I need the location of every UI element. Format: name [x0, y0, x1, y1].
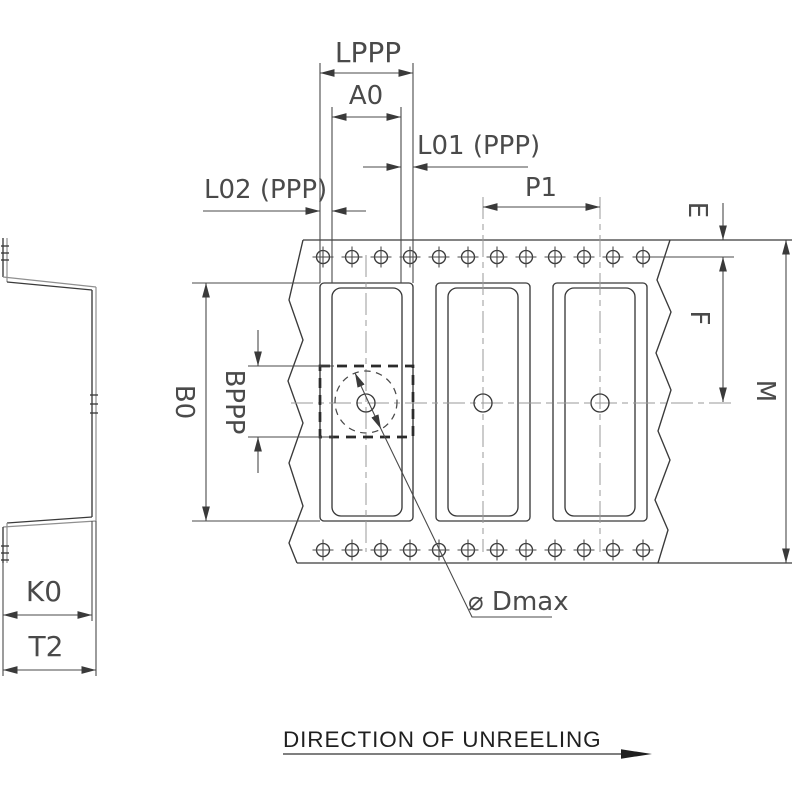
dimension-lppp: LPPP: [320, 36, 413, 283]
m-label: M: [750, 380, 780, 402]
f-label: F: [684, 311, 714, 326]
dimension-l02: L02 (PPP): [203, 175, 366, 211]
l02-label: L02 (PPP): [204, 175, 327, 205]
carrier-tape-technical-drawing: K0 T2: [0, 0, 800, 800]
dimension-m: M: [750, 240, 786, 563]
side-profile-view: K0 T2: [1, 238, 98, 676]
e-label: E: [682, 202, 712, 218]
a0-label: A0: [349, 81, 383, 111]
dmax-hole-side-ticks: [90, 395, 98, 413]
center-lines: [291, 197, 735, 552]
t2-label: T2: [28, 630, 64, 663]
direction-arrow-icon: [621, 749, 652, 758]
dimension-p1: P1: [483, 173, 600, 207]
dimension-e: E: [651, 202, 734, 257]
sprocket-hole-side-ticks-top: [1, 246, 9, 260]
direction-label: DIRECTION OF UNREELING: [283, 727, 602, 752]
tape-torn-edge-right: [655, 240, 671, 563]
tape-torn-edge-left: [288, 240, 303, 563]
b0-label: B0: [169, 385, 199, 419]
pocket-top-wall-inner: [7, 282, 92, 290]
l01-label: L01 (PPP): [417, 131, 540, 161]
bppp-label: BPPP: [219, 370, 249, 435]
diameter-arrow: [355, 373, 381, 429]
dmax-label: ⌀ Dmax: [468, 587, 569, 617]
p1-label: P1: [525, 173, 557, 203]
dimension-a0: A0: [332, 81, 401, 283]
drawing-page: K0 T2: [0, 0, 800, 800]
dimension-bppp: BPPP: [219, 330, 334, 473]
lppp-label: LPPP: [335, 36, 401, 69]
dimension-f: F: [684, 257, 723, 402]
dimension-l01: L01 (PPP): [363, 131, 540, 167]
direction-of-unreeling: DIRECTION OF UNREELING: [283, 727, 652, 759]
dimensions: LPPP A0 L01 (PPP) L02 (PPP) P1: [169, 36, 786, 563]
pocket-1-inner: [332, 288, 402, 516]
k0-label: K0: [26, 575, 62, 608]
tape-top-view: ⌀ Dmax: [288, 197, 792, 617]
sprocket-hole-side-ticks-bottom: [1, 546, 9, 560]
